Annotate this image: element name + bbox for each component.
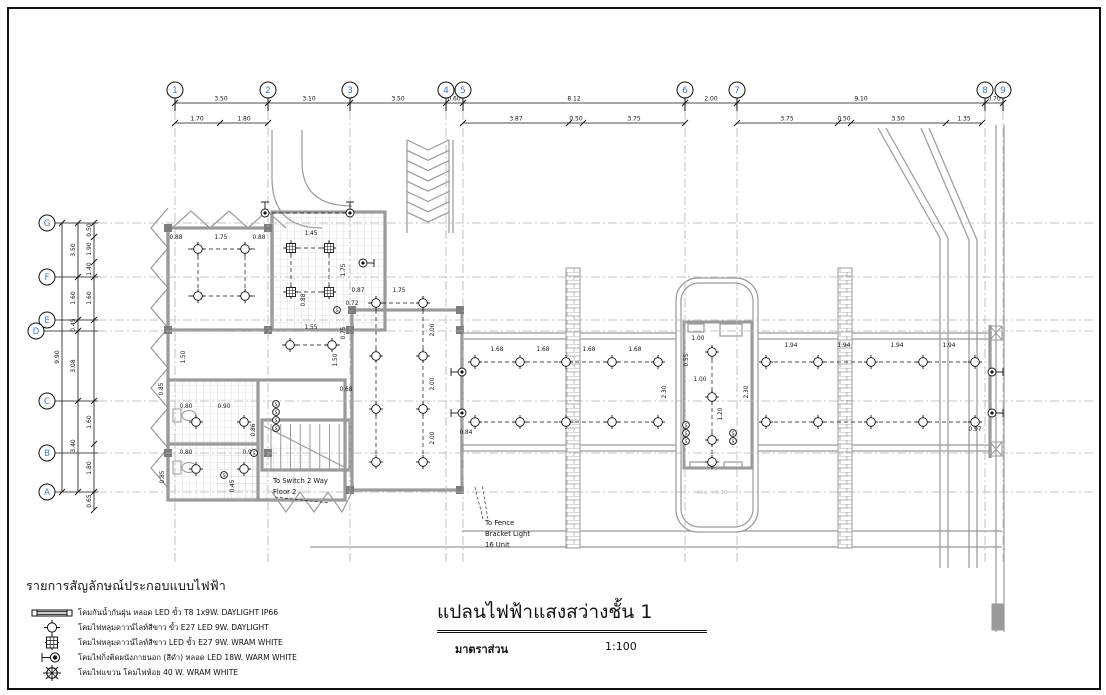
scale-label: มาตราส่วน — [455, 640, 585, 658]
svg-text:1.70: 1.70 — [190, 116, 204, 123]
title-block: แปลนไฟฟ้าแสงสว่างชั้น 1 มาตราส่วน 1:100 — [437, 597, 723, 658]
svg-text:6: 6 — [682, 86, 688, 96]
svg-text:D: D — [33, 327, 40, 337]
svg-text:0.50: 0.50 — [837, 116, 851, 123]
legend-header: รายการสัญลักษณ์ประกอบแบบไฟฟ้า — [26, 576, 446, 596]
svg-text:To Switch 2 Way: To Switch 2 Way — [272, 477, 328, 485]
wall-bracket-icon — [26, 650, 78, 665]
svg-text:1.68: 1.68 — [491, 347, 504, 353]
svg-text:8: 8 — [982, 86, 988, 96]
legend-item-label: โคมไฟหลุมดาวน์ไลท์สีขาว ขั้ว E27 LED 9W.… — [78, 622, 269, 634]
svg-text:1.68: 1.68 — [583, 347, 596, 353]
svg-text:S: S — [275, 418, 278, 424]
svg-text:S: S — [275, 426, 278, 432]
svg-text:คสล. +0.10: คสล. +0.10 — [697, 489, 728, 496]
svg-text:1.94: 1.94 — [943, 343, 956, 349]
legend-item-downlight: โคมไฟหลุมดาวน์ไลท์สีขาว ขั้ว E27 LED 9W.… — [26, 620, 446, 635]
svg-text:B: B — [44, 449, 50, 459]
svg-text:1.60: 1.60 — [86, 415, 93, 429]
svg-text:0.80: 0.80 — [180, 450, 193, 456]
svg-text:0.90: 0.90 — [218, 404, 231, 410]
svg-text:1.94: 1.94 — [838, 343, 851, 349]
svg-text:0.65: 0.65 — [86, 494, 93, 508]
svg-text:9.10: 9.10 — [854, 96, 868, 103]
svg-text:2.00: 2.00 — [704, 96, 718, 103]
drawing-sheet: 3.503.103.500.608.122.009.100.701.701.80… — [0, 0, 1106, 695]
legend-item-wall-bracket: โคมไฟกิ่งติดผนังภายนอก (สีดำ) หลอด LED 1… — [26, 650, 446, 665]
svg-text:0.87: 0.87 — [352, 288, 365, 294]
downlight-icon — [26, 620, 78, 635]
legend-item-label: โคมไฟกิ่งติดผนังภายนอก (สีดำ) หลอด LED 1… — [78, 652, 297, 664]
svg-text:1.60: 1.60 — [86, 291, 93, 305]
fluorescent-tube-icon — [26, 606, 78, 620]
legend-item-pendant: โคมไฟแขวน โคมไฟห้อย 40 W. WRAM WHITE — [26, 665, 446, 680]
svg-text:0.84: 0.84 — [460, 430, 473, 436]
svg-text:16 Unit: 16 Unit — [485, 541, 510, 549]
svg-text:5: 5 — [460, 86, 466, 96]
svg-text:1.80: 1.80 — [237, 116, 251, 123]
svg-text:1.90: 1.90 — [86, 242, 93, 256]
svg-text:0.88: 0.88 — [253, 235, 266, 241]
svg-text:1.20: 1.20 — [718, 407, 724, 420]
svg-text:1.75: 1.75 — [393, 288, 406, 294]
svg-text:0.45: 0.45 — [230, 479, 236, 492]
svg-text:S: S — [732, 439, 735, 445]
svg-text:0.75: 0.75 — [341, 326, 347, 339]
svg-text:To Fence: To Fence — [484, 519, 514, 527]
svg-text:3: 3 — [347, 86, 353, 96]
svg-text:3.87: 3.87 — [509, 116, 523, 123]
svg-text:S: S — [275, 410, 278, 416]
scale-row: มาตราส่วน 1:100 — [437, 640, 723, 658]
svg-text:2: 2 — [265, 86, 271, 96]
svg-text:1.94: 1.94 — [891, 343, 904, 349]
svg-text:S: S — [253, 451, 256, 457]
svg-text:2.30: 2.30 — [662, 385, 668, 398]
svg-text:S: S — [685, 431, 688, 437]
pendant-light-icon — [26, 665, 78, 681]
svg-text:1.50: 1.50 — [333, 353, 339, 366]
svg-text:3.75: 3.75 — [780, 116, 794, 123]
svg-text:1.55: 1.55 — [305, 325, 318, 331]
svg-text:F: F — [45, 273, 50, 283]
downlight-warm-icon — [26, 635, 78, 650]
legend-item-label: โคมไฟหลุมดาวน์ไลท์สีขาว LED ขั้ว E27 9W.… — [78, 637, 283, 649]
svg-text:0.55: 0.55 — [684, 353, 690, 366]
svg-text:1.68: 1.68 — [537, 347, 550, 353]
svg-text:2.00: 2.00 — [430, 431, 436, 444]
svg-text:A: A — [44, 488, 50, 498]
svg-text:1.00: 1.00 — [692, 336, 705, 342]
symbol-legend: รายการสัญลักษณ์ประกอบแบบไฟฟ้า โคมกันน้ำก… — [26, 576, 446, 680]
svg-text:C: C — [44, 397, 50, 407]
svg-text:9.90: 9.90 — [54, 350, 61, 364]
svg-text:3.50: 3.50 — [214, 96, 228, 103]
svg-text:1.75: 1.75 — [215, 235, 228, 241]
annotation-layer: To Switch 2 WayFloor 2To FenceBracket Li… — [272, 477, 728, 549]
svg-text:0.85: 0.85 — [160, 470, 166, 483]
scale-value: 1:100 — [605, 640, 637, 658]
svg-text:0.88: 0.88 — [301, 293, 307, 306]
svg-text:S: S — [732, 431, 735, 437]
svg-text:S: S — [685, 423, 688, 429]
svg-text:S: S — [685, 439, 688, 445]
svg-text:2.00: 2.00 — [430, 377, 436, 390]
legend-item-label: โคมไฟแขวน โคมไฟห้อย 40 W. WRAM WHITE — [78, 667, 238, 679]
svg-text:4: 4 — [443, 86, 449, 96]
svg-text:S: S — [336, 308, 339, 314]
legend-item-fluorescent: โคมกันน้ำกันฝุ่น หลอด LED ขั้ว T8 1x9W. … — [26, 605, 446, 620]
svg-text:1.40: 1.40 — [86, 262, 93, 276]
svg-text:2.30: 2.30 — [744, 385, 750, 398]
svg-text:3.40: 3.40 — [70, 439, 77, 453]
svg-text:G: G — [44, 219, 51, 229]
svg-text:S: S — [223, 473, 226, 479]
legend-item-downlight-warm: โคมไฟหลุมดาวน์ไลท์สีขาว LED ขั้ว E27 9W.… — [26, 635, 446, 650]
svg-text:E: E — [44, 316, 49, 326]
svg-text:3.50: 3.50 — [891, 116, 905, 123]
svg-text:3.10: 3.10 — [302, 96, 316, 103]
svg-text:3.50: 3.50 — [391, 96, 405, 103]
svg-text:1.45: 1.45 — [305, 231, 318, 237]
svg-text:0.85: 0.85 — [159, 382, 165, 395]
sheet-title: แปลนไฟฟ้าแสงสว่างชั้น 1 — [437, 597, 707, 633]
svg-text:0.88: 0.88 — [170, 235, 183, 241]
svg-text:0.86: 0.86 — [251, 423, 257, 436]
svg-text:1.80: 1.80 — [86, 461, 93, 475]
svg-text:1.68: 1.68 — [629, 347, 642, 353]
svg-text:1.60: 1.60 — [70, 291, 77, 305]
svg-text:8.12: 8.12 — [567, 96, 581, 103]
svg-text:0.80: 0.80 — [180, 404, 193, 410]
svg-text:0.68: 0.68 — [340, 387, 353, 393]
svg-text:3.50: 3.50 — [70, 243, 77, 257]
svg-text:1.35: 1.35 — [957, 116, 971, 123]
svg-text:Floor 2: Floor 2 — [273, 488, 296, 496]
svg-text:3.08: 3.08 — [70, 359, 77, 373]
svg-text:9: 9 — [1000, 86, 1006, 96]
svg-text:2.00: 2.00 — [430, 323, 436, 336]
svg-text:7: 7 — [734, 86, 740, 96]
svg-text:1.50: 1.50 — [181, 350, 187, 363]
svg-text:0.50: 0.50 — [569, 116, 583, 123]
svg-text:0.72: 0.72 — [346, 301, 359, 307]
svg-text:3.75: 3.75 — [627, 116, 641, 123]
svg-text:1.94: 1.94 — [785, 343, 798, 349]
legend-item-label: โคมกันน้ำกันฝุ่น หลอด LED ขั้ว T8 1x9W. … — [78, 607, 278, 619]
svg-text:1.00: 1.00 — [694, 377, 707, 383]
svg-text:Bracket Light: Bracket Light — [485, 530, 530, 538]
svg-text:0.50: 0.50 — [86, 223, 93, 237]
svg-text:1.75: 1.75 — [341, 263, 347, 276]
svg-text:1: 1 — [172, 86, 178, 96]
svg-text:S: S — [275, 402, 278, 408]
